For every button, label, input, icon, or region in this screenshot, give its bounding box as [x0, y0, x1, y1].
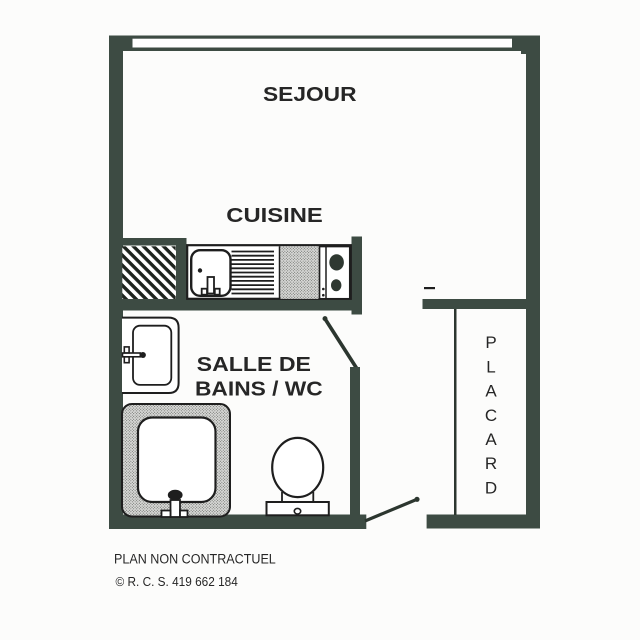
svg-text:R: R: [485, 454, 497, 473]
svg-text:SALLE DE: SALLE DE: [197, 354, 311, 376]
svg-text:CUISINE: CUISINE: [226, 205, 322, 227]
svg-text:BAINS / WC: BAINS / WC: [195, 379, 323, 401]
svg-text:SEJOUR: SEJOUR: [263, 84, 357, 106]
svg-text:L: L: [486, 357, 495, 376]
svg-text:D: D: [485, 478, 497, 497]
svg-text:A: A: [485, 430, 497, 449]
svg-text:A: A: [485, 382, 497, 401]
svg-text:P: P: [485, 333, 496, 352]
svg-text:C: C: [485, 406, 497, 425]
svg-text:PLAN NON CONTRACTUEL: PLAN NON CONTRACTUEL: [114, 551, 276, 566]
svg-text:© R. C. S. 419 662 184: © R. C. S. 419 662 184: [116, 574, 238, 589]
